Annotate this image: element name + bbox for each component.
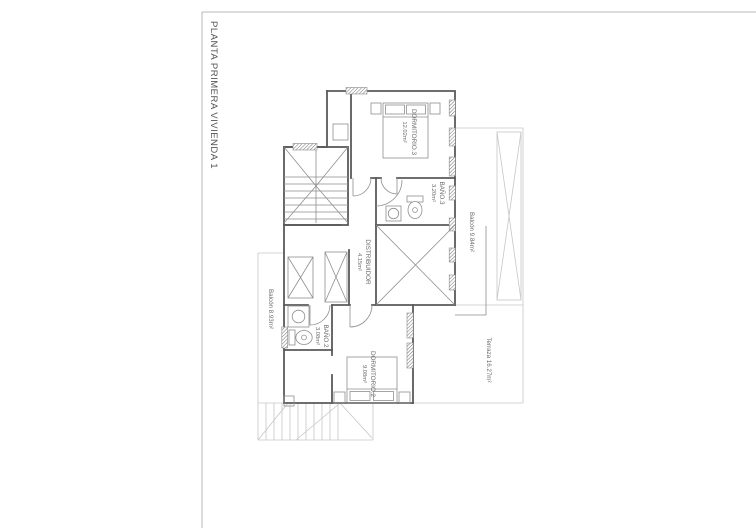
floor-plan-svg: PLANTA PRIMERA VIVIENDA 1 bbox=[0, 0, 756, 528]
exterior-stairs-icon bbox=[258, 403, 373, 440]
open-area-cross-icon bbox=[376, 225, 455, 305]
nightstand-icon bbox=[430, 103, 440, 114]
window-icon bbox=[449, 128, 455, 146]
room-area-bano-2: 3.08m² bbox=[314, 327, 320, 345]
nightstand-icon bbox=[334, 392, 345, 403]
door-icon bbox=[350, 305, 372, 327]
sheet-frame bbox=[202, 12, 756, 528]
room-label-distribuidor: DISTRIBUIDOR bbox=[364, 239, 371, 285]
column-stub bbox=[333, 124, 348, 140]
pillow-icon bbox=[350, 392, 370, 401]
window-icon bbox=[282, 327, 288, 348]
room-label-dormitorio-3: DORMITORIO.3 bbox=[410, 109, 417, 156]
door-icon bbox=[381, 178, 397, 194]
bathroom-2 bbox=[288, 306, 312, 345]
staircase-icon bbox=[284, 147, 348, 225]
room-label-dormitorio-2: DORMITORIO.2 bbox=[369, 351, 376, 398]
room-label-bano-3: BAÑO.3 bbox=[438, 181, 447, 205]
window-icon bbox=[407, 343, 413, 368]
page-title: PLANTA PRIMERA VIVIENDA 1 bbox=[208, 21, 219, 169]
pillow-icon bbox=[386, 105, 405, 114]
window-icon bbox=[449, 157, 455, 176]
window-icon bbox=[449, 275, 455, 290]
shower-icon bbox=[376, 180, 402, 206]
label-balcon-right: Balcón 9.84m² bbox=[468, 212, 475, 252]
nightstand-icon bbox=[371, 103, 381, 114]
room-area-dormitorio-3: 12.02m² bbox=[401, 121, 407, 142]
balcony-right bbox=[455, 128, 523, 305]
window-icon bbox=[293, 144, 317, 151]
window-icon bbox=[449, 248, 455, 262]
window-icon bbox=[346, 88, 367, 95]
corner-post bbox=[284, 396, 294, 406]
floor-plan: DORMITORIO.3 12.02m² BAÑO.3 3.20m² DISTR… bbox=[258, 88, 523, 441]
window-icon bbox=[407, 313, 413, 338]
window-icon bbox=[449, 218, 455, 231]
room-area-dormitorio-2: 9.08m² bbox=[361, 365, 367, 383]
room-area-bano-3: 3.20m² bbox=[430, 184, 436, 202]
door-icon bbox=[353, 178, 371, 196]
nightstand-icon bbox=[399, 392, 410, 403]
room-area-distribuidor: 4.15m² bbox=[356, 253, 362, 271]
balcony-brace-icon bbox=[497, 132, 521, 300]
room-label-bano-2: BAÑO.2 bbox=[322, 324, 331, 348]
toilet-icon bbox=[289, 330, 295, 345]
window-icon bbox=[449, 100, 455, 116]
label-terraza: Terraza 16.27m² bbox=[485, 337, 492, 382]
terrace bbox=[413, 226, 523, 403]
label-balcon-left: Balcón 8.93m² bbox=[267, 289, 274, 329]
window-icon bbox=[449, 186, 455, 200]
door-icon bbox=[310, 305, 330, 325]
drawing-sheet: PLANTA PRIMERA VIVIENDA 1 bbox=[0, 0, 756, 528]
